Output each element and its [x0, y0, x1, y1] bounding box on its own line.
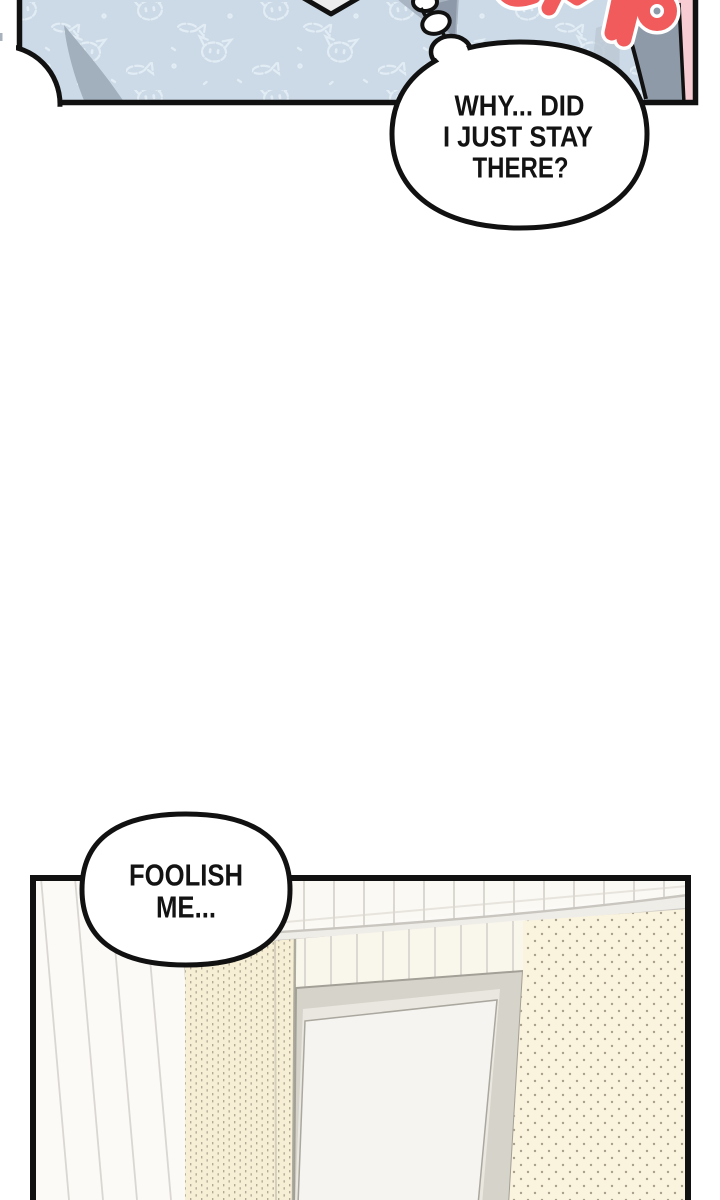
svg-text:WHY... DID: WHY... DID — [455, 91, 585, 123]
svg-text:THERE?: THERE? — [473, 153, 569, 185]
svg-text:I JUST STAY: I JUST STAY — [443, 122, 593, 154]
svg-text:FOOLISH: FOOLISH — [129, 858, 243, 893]
svg-text:ME...: ME... — [156, 890, 216, 925]
